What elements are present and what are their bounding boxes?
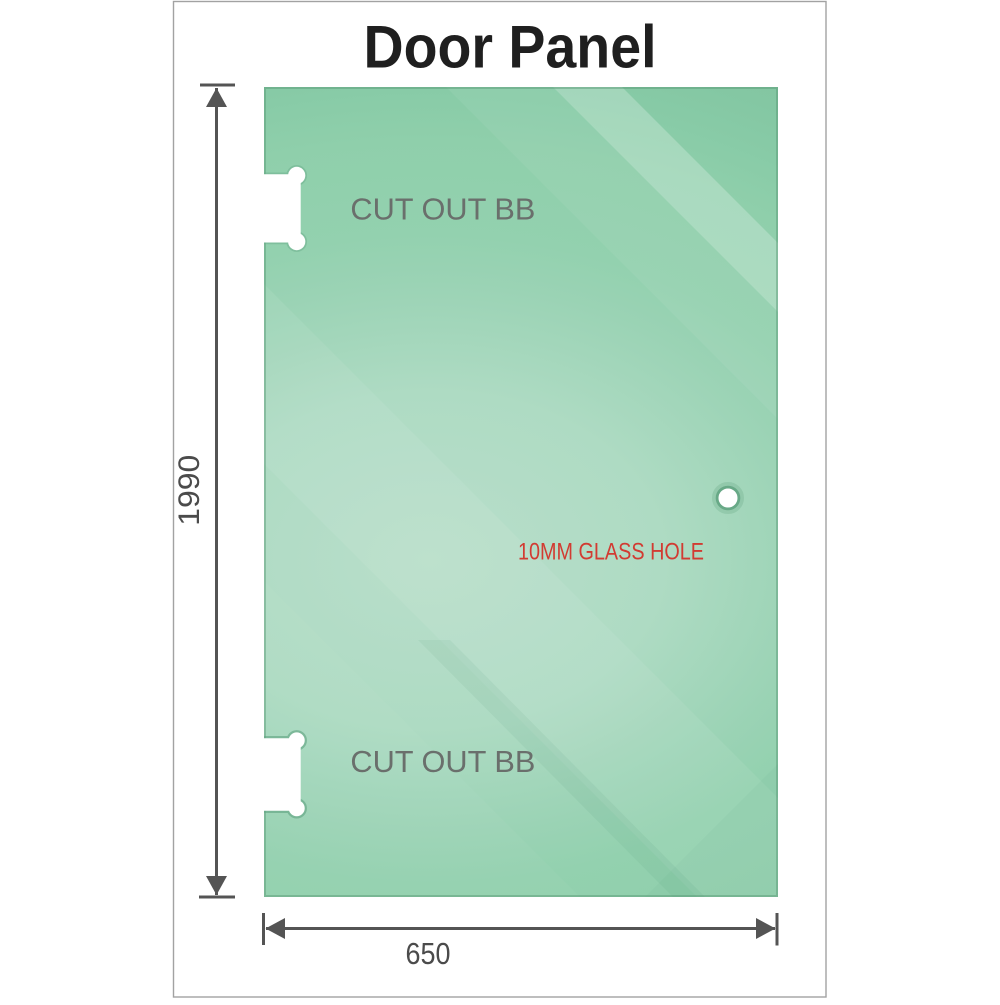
svg-text:Door Panel: Door Panel xyxy=(364,14,657,81)
svg-text:CUT OUT BB: CUT OUT BB xyxy=(350,193,535,227)
svg-text:10MM GLASS HOLE: 10MM GLASS HOLE xyxy=(518,539,704,566)
svg-text:1990: 1990 xyxy=(173,455,206,526)
svg-text:CUT OUT BB: CUT OUT BB xyxy=(350,745,535,779)
svg-text:650: 650 xyxy=(406,936,451,971)
